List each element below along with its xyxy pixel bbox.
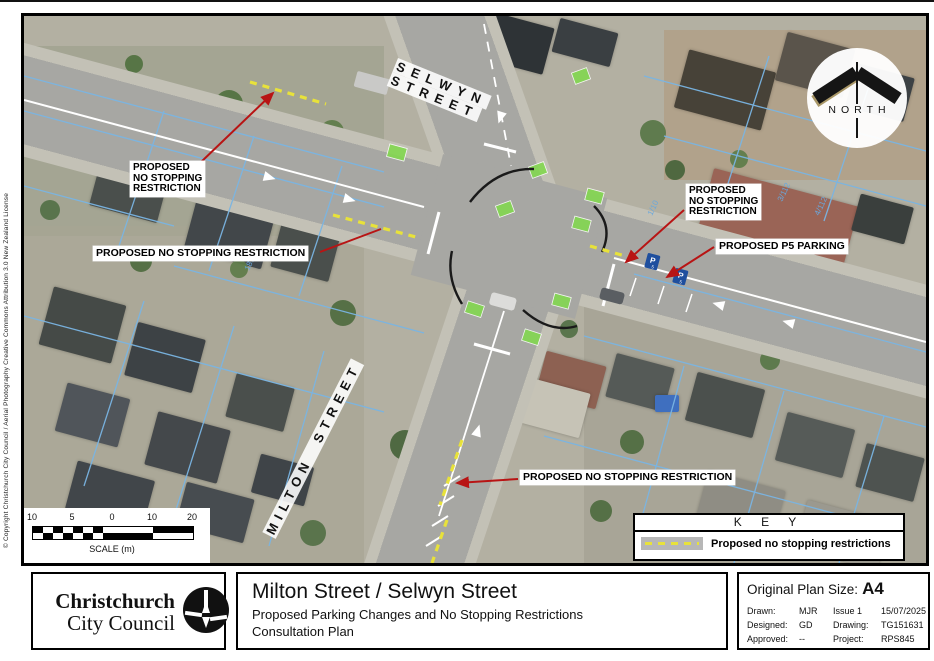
- leader-lines: [200, 93, 714, 483]
- plan-subtitle: Proposed Parking Changes and No Stopping…: [252, 607, 583, 622]
- callout-no-stopping-nw: PROPOSED NO STOPPING RESTRICTION: [130, 161, 205, 197]
- callout-no-stopping-south: PROPOSED NO STOPPING RESTRICTION: [520, 470, 735, 485]
- drawing-info-grid: Drawn:MJRIssue 115/07/2025 Designed:GDDr…: [747, 604, 926, 646]
- map-key: K E Y Proposed no stopping restrictions: [633, 513, 905, 561]
- aerial-map: 1/10 3/112 4/112 181: [21, 13, 929, 566]
- council-logo-box: Christchurch City Council: [31, 572, 226, 650]
- copyright-vertical-text: © Copyright Christchurch City Council / …: [3, 148, 10, 548]
- title-block: Milton Street / Selwyn Street Proposed P…: [236, 572, 728, 650]
- callout-no-stopping-east: PROPOSED NO STOPPING RESTRICTION: [686, 184, 761, 220]
- key-title: K E Y: [635, 515, 903, 532]
- north-arrow-icon: [854, 67, 901, 104]
- no-stopping-dashes: [250, 82, 632, 563]
- no-stopping-swatch: [641, 537, 703, 550]
- vehicles: [354, 71, 626, 311]
- scale-caption: SCALE (m): [89, 544, 135, 554]
- svg-text:3/112: 3/112: [776, 181, 793, 203]
- north-label: NORTH: [807, 104, 907, 116]
- compass-needle-line: [856, 118, 858, 138]
- council-name: Christchurch City Council: [47, 590, 175, 634]
- plan-title: Milton Street / Selwyn Street: [252, 580, 517, 604]
- plan-subtitle-2: Consultation Plan: [252, 624, 354, 639]
- compass-needle-line: [856, 62, 858, 104]
- callout-p5-parking: PROPOSED P5 PARKING: [716, 239, 848, 254]
- north-compass: NORTH: [807, 48, 907, 148]
- sheet-top-border: [0, 0, 934, 2]
- p5-parking-signs: P 5 P 5: [644, 253, 688, 286]
- plan-sheet: © Copyright Christchurch City Council / …: [0, 0, 934, 661]
- scale-bar: [32, 526, 194, 540]
- scale-tick: 20: [187, 512, 197, 522]
- scale-tick: 10: [27, 512, 37, 522]
- plan-size: Original Plan Size:A4: [747, 579, 884, 599]
- scale-bar-panel: 10 5 0 10 20 SCALE (m): [24, 508, 210, 563]
- drawing-info-block: Original Plan Size:A4 Drawn:MJRIssue 115…: [737, 572, 930, 650]
- key-entry-row: Proposed no stopping restrictions: [635, 532, 903, 555]
- scale-tick: 0: [109, 512, 114, 522]
- key-entry-label: Proposed no stopping restrictions: [711, 538, 891, 550]
- scale-tick: 10: [147, 512, 157, 522]
- scale-tick: 5: [69, 512, 74, 522]
- svg-text:1/10: 1/10: [646, 198, 661, 216]
- callout-no-stopping-west: PROPOSED NO STOPPING RESTRICTION: [93, 246, 308, 261]
- north-arrow-icon: [812, 67, 859, 104]
- council-crest-icon: [183, 587, 229, 633]
